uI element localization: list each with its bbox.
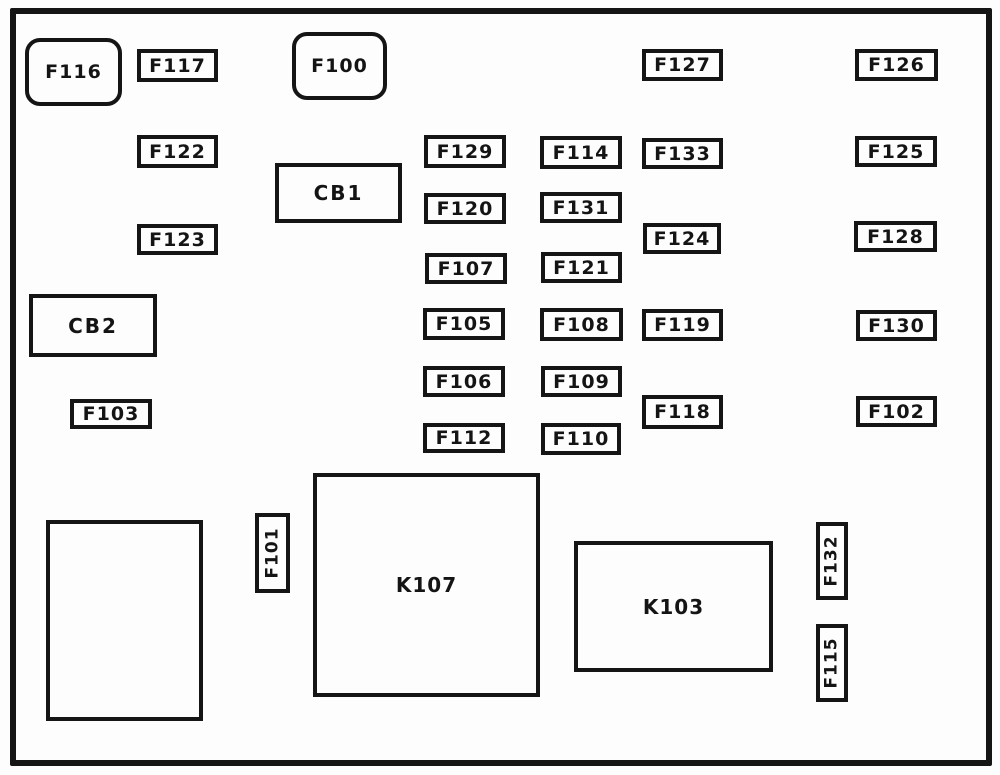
component-label: K103 bbox=[643, 595, 704, 619]
component-label: F119 bbox=[654, 314, 711, 336]
component-label: F100 bbox=[311, 55, 368, 77]
component-label: F108 bbox=[553, 314, 610, 336]
fuse-f105: F105 bbox=[423, 308, 505, 340]
fuse-f129: F129 bbox=[424, 135, 506, 168]
component-label: F132 bbox=[822, 535, 842, 586]
fuse-f133: F133 bbox=[642, 138, 723, 169]
fuse-f118: F118 bbox=[642, 395, 723, 429]
component-label: F107 bbox=[438, 258, 495, 280]
component-label: F120 bbox=[437, 198, 494, 220]
fuse-f126: F126 bbox=[855, 49, 938, 81]
component-label: F131 bbox=[553, 197, 610, 219]
fuse-f115: F115 bbox=[816, 624, 848, 702]
component-label: F110 bbox=[553, 428, 610, 450]
component-label: CB2 bbox=[68, 314, 118, 338]
fuse-f130: F130 bbox=[856, 310, 937, 341]
fuse-f127: F127 bbox=[642, 49, 723, 81]
fuse-f114: F114 bbox=[540, 136, 622, 169]
component-label: F116 bbox=[45, 61, 102, 83]
fuse-f122: F122 bbox=[137, 135, 218, 168]
fuse-f101: F101 bbox=[255, 513, 290, 593]
fuse-f107: F107 bbox=[425, 253, 507, 284]
component-label: F122 bbox=[149, 141, 206, 163]
component-label: F114 bbox=[553, 142, 610, 164]
component-label: F115 bbox=[822, 637, 842, 688]
component-label: F129 bbox=[437, 141, 494, 163]
fuse-f100: F100 bbox=[292, 32, 387, 100]
fuse-f116: F116 bbox=[25, 38, 122, 106]
fuse-f109: F109 bbox=[541, 366, 622, 397]
component-label: F128 bbox=[867, 226, 924, 248]
fuse-f120: F120 bbox=[424, 193, 506, 224]
component-label: F126 bbox=[868, 54, 925, 76]
fuse-f117: F117 bbox=[137, 49, 218, 82]
fuse-f119: F119 bbox=[642, 309, 723, 341]
fuse-f108: F108 bbox=[540, 308, 623, 341]
circuit-breaker-cb2: CB2 bbox=[29, 294, 157, 357]
fuse-f124: F124 bbox=[643, 223, 721, 254]
fuse-f121: F121 bbox=[541, 252, 622, 283]
component-label: F121 bbox=[553, 257, 610, 279]
fuse-f102: F102 bbox=[856, 396, 937, 427]
circuit-breaker-cb1: CB1 bbox=[275, 163, 402, 223]
relay-k107: K107 bbox=[313, 473, 540, 697]
component-label: F125 bbox=[868, 141, 925, 163]
component-label: F105 bbox=[436, 313, 493, 335]
component-label: F127 bbox=[654, 54, 711, 76]
component-label: F130 bbox=[868, 315, 925, 337]
fuse-f106: F106 bbox=[423, 366, 505, 397]
fuse-f103: F103 bbox=[70, 399, 152, 429]
component-label: F103 bbox=[83, 403, 140, 425]
component-label: F101 bbox=[263, 527, 283, 578]
component-label: F112 bbox=[436, 427, 493, 449]
fuse-f131: F131 bbox=[540, 192, 622, 223]
fuse-f132: F132 bbox=[816, 522, 848, 600]
fuse-f128: F128 bbox=[854, 221, 937, 252]
component-label: F102 bbox=[868, 401, 925, 423]
fuse-f125: F125 bbox=[855, 136, 937, 167]
component-label: F133 bbox=[654, 143, 711, 165]
component-label: F118 bbox=[654, 401, 711, 423]
component-label: F106 bbox=[436, 371, 493, 393]
component-label: K107 bbox=[396, 573, 457, 597]
component-label: F117 bbox=[149, 55, 206, 77]
component-label: F109 bbox=[553, 371, 610, 393]
fuse-f112: F112 bbox=[423, 423, 505, 453]
fuse-f123: F123 bbox=[137, 224, 218, 255]
component-label: F123 bbox=[149, 229, 206, 251]
component-label: F124 bbox=[654, 228, 711, 250]
fuse-f110: F110 bbox=[541, 423, 621, 455]
unlabeled-component-box bbox=[46, 520, 203, 721]
component-label: CB1 bbox=[314, 181, 364, 205]
fuse-box-diagram: F116F117F100F127F126F122F129F114F133F125… bbox=[0, 0, 1000, 775]
relay-k103: K103 bbox=[574, 541, 773, 672]
